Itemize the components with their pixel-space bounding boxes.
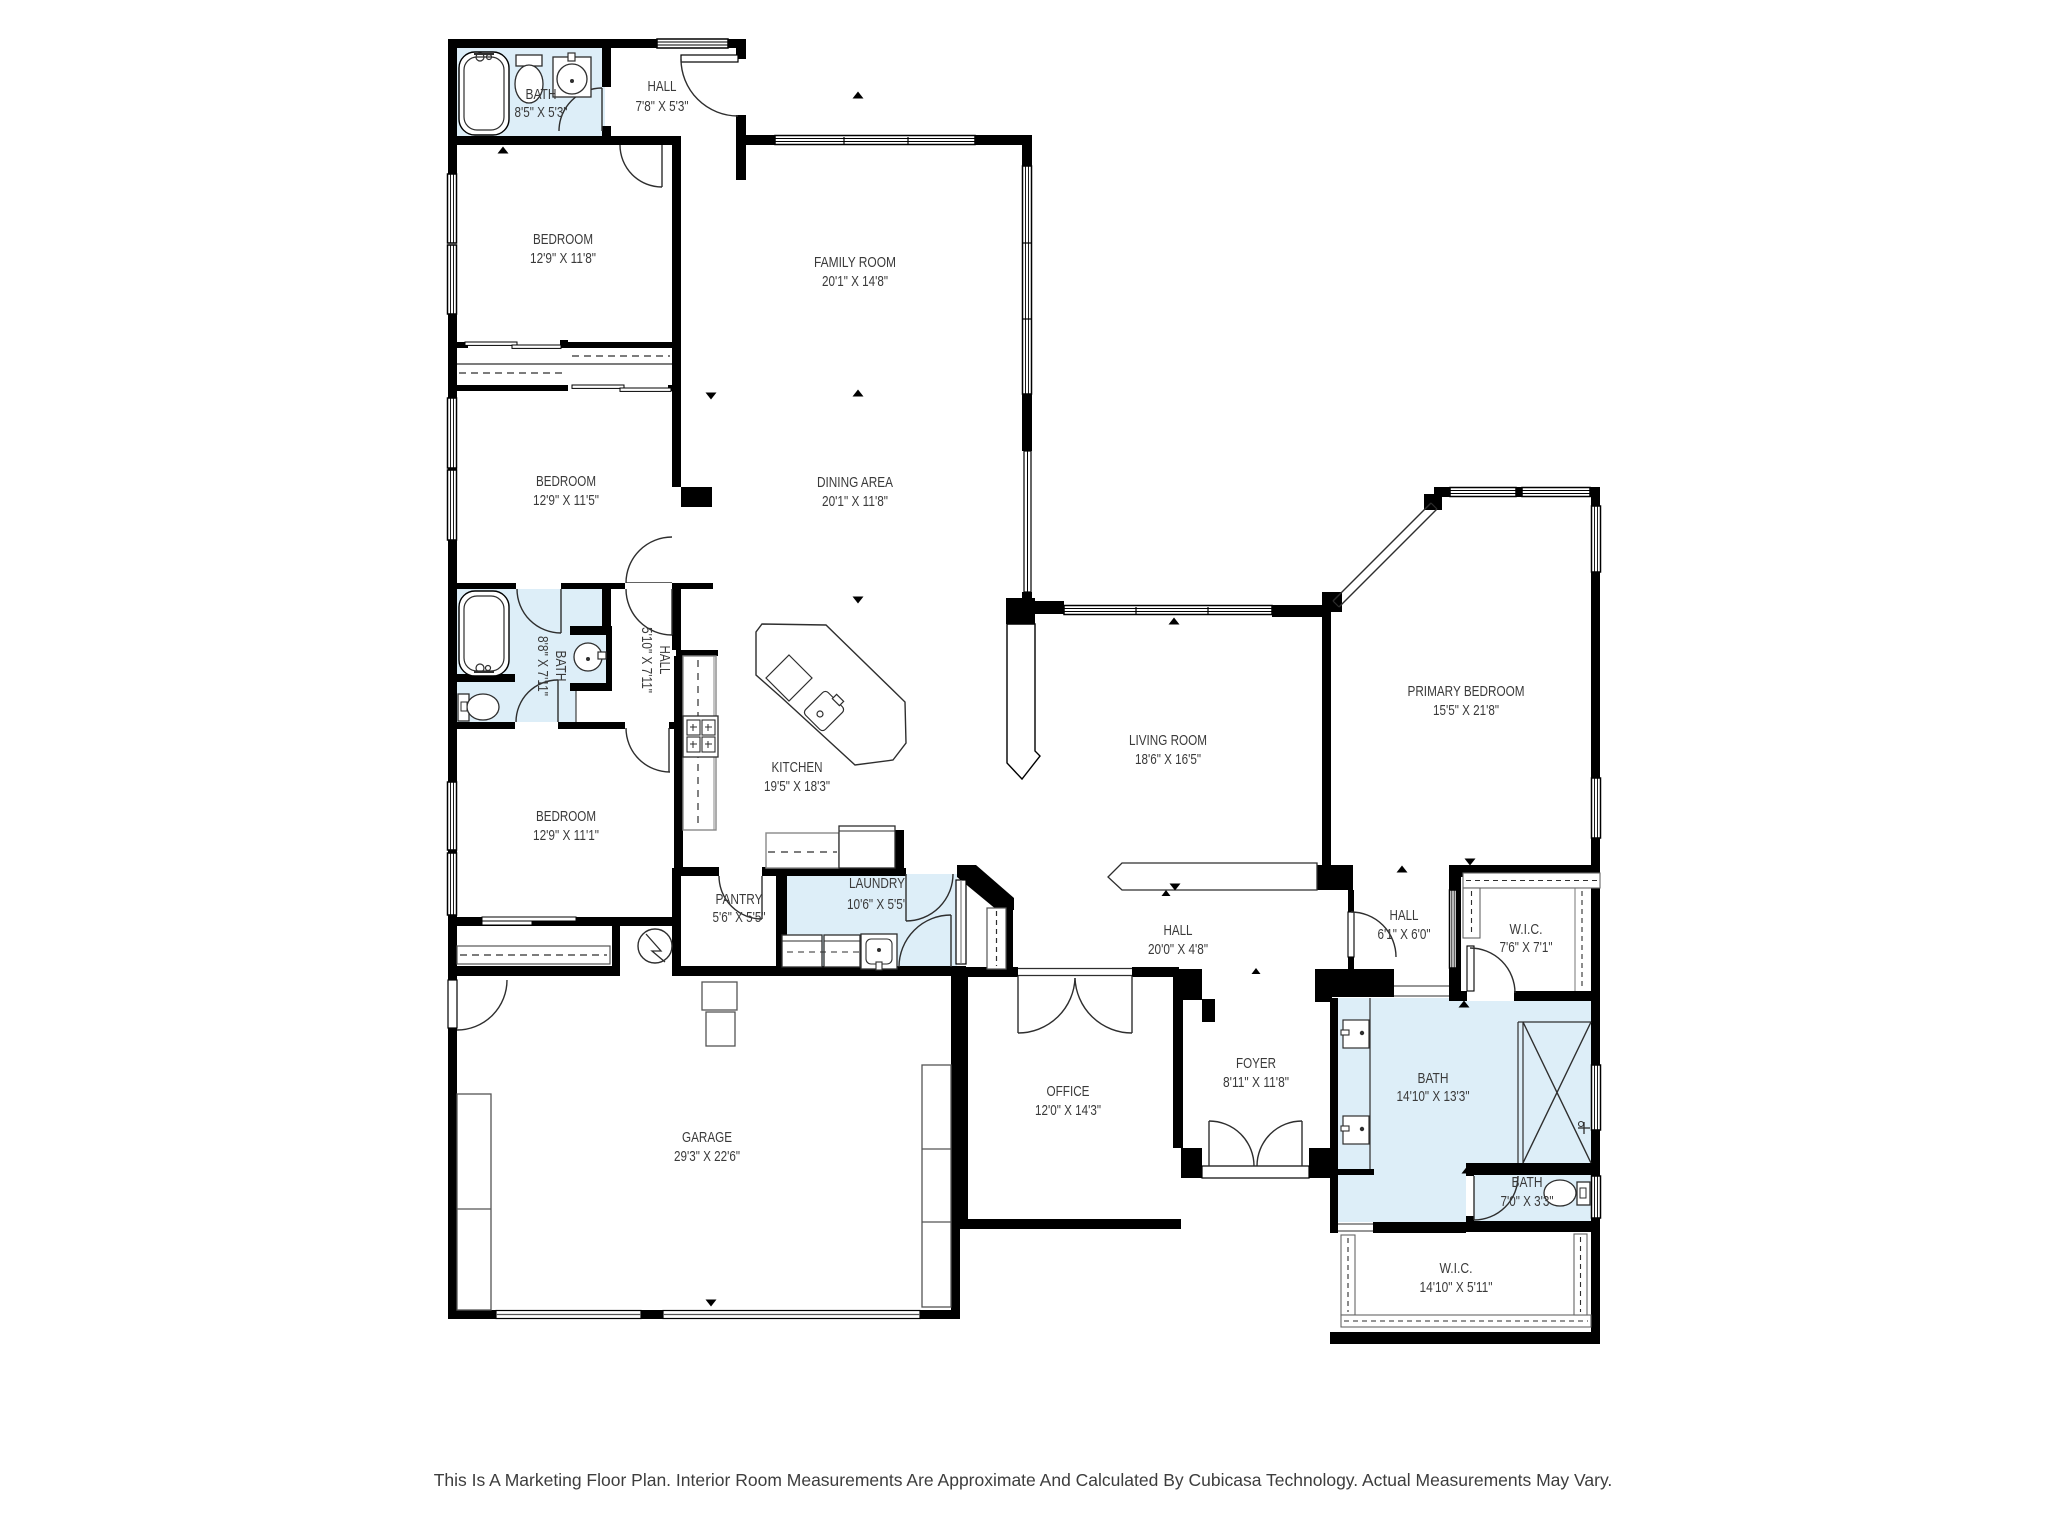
svg-text:19'5" X 18'3": 19'5" X 18'3" — [764, 778, 830, 795]
svg-text:7'8" X 5'3": 7'8" X 5'3" — [636, 98, 689, 115]
svg-text:BATH: BATH — [552, 651, 569, 682]
svg-text:20'1" X 14'8": 20'1" X 14'8" — [822, 273, 888, 290]
svg-text:DINING AREA: DINING AREA — [817, 474, 893, 491]
svg-text:GARAGE: GARAGE — [682, 1129, 732, 1146]
svg-text:18'6" X 16'5": 18'6" X 16'5" — [1135, 751, 1201, 768]
svg-text:14'10" X 5'11": 14'10" X 5'11" — [1420, 1279, 1493, 1296]
svg-text:FOYER: FOYER — [1236, 1055, 1276, 1072]
svg-text:W.I.C.: W.I.C. — [1510, 921, 1543, 938]
svg-text:7'6" X 7'1": 7'6" X 7'1" — [1500, 939, 1553, 956]
svg-text:BATH: BATH — [526, 86, 557, 103]
svg-text:8'8" X 7'11": 8'8" X 7'11" — [534, 636, 551, 696]
svg-text:LAUNDRY: LAUNDRY — [849, 875, 905, 892]
svg-text:HALL: HALL — [1390, 907, 1419, 924]
svg-text:12'9" X 11'8": 12'9" X 11'8" — [530, 250, 596, 267]
svg-text:BATH: BATH — [1418, 1070, 1449, 1087]
svg-text:12'9" X 11'1": 12'9" X 11'1" — [533, 827, 599, 844]
svg-text:BEDROOM: BEDROOM — [536, 808, 596, 825]
svg-text:LIVING ROOM: LIVING ROOM — [1129, 732, 1207, 749]
svg-text:12'0" X 14'3": 12'0" X 14'3" — [1035, 1102, 1101, 1119]
svg-text:FAMILY ROOM: FAMILY ROOM — [814, 254, 896, 271]
svg-text:12'9" X 11'5": 12'9" X 11'5" — [533, 492, 599, 509]
svg-text:14'10" X 13'3": 14'10" X 13'3" — [1397, 1088, 1470, 1105]
svg-text:8'11" X 11'8": 8'11" X 11'8" — [1223, 1074, 1289, 1091]
svg-text:10'6" X 5'5": 10'6" X 5'5" — [847, 896, 907, 913]
svg-text:HALL: HALL — [1164, 922, 1193, 939]
svg-text:20'1" X 11'8": 20'1" X 11'8" — [822, 493, 888, 510]
svg-text:29'3" X 22'6": 29'3" X 22'6" — [674, 1148, 740, 1165]
svg-text:15'5" X 21'8": 15'5" X 21'8" — [1433, 702, 1499, 719]
svg-text:PRIMARY BEDROOM: PRIMARY BEDROOM — [1408, 683, 1525, 700]
svg-text:W.I.C.: W.I.C. — [1440, 1260, 1473, 1277]
svg-text:20'0" X 4'8": 20'0" X 4'8" — [1148, 941, 1208, 958]
svg-text:OFFICE: OFFICE — [1047, 1083, 1090, 1100]
svg-text:PANTRY: PANTRY — [716, 891, 763, 908]
svg-text:HALL: HALL — [648, 78, 677, 95]
svg-text:BEDROOM: BEDROOM — [536, 473, 596, 490]
svg-text:KITCHEN: KITCHEN — [772, 759, 823, 776]
svg-text:BATH: BATH — [1512, 1174, 1543, 1191]
svg-text:This Is A Marketing Floor Plan: This Is A Marketing Floor Plan. Interior… — [434, 1470, 1613, 1490]
svg-text:7'0" X 3'3": 7'0" X 3'3" — [1501, 1193, 1554, 1210]
svg-text:HALL: HALL — [656, 646, 673, 675]
svg-text:5'6" X 5'5": 5'6" X 5'5" — [713, 909, 766, 926]
svg-text:6'1" X 6'0": 6'1" X 6'0" — [1378, 926, 1431, 943]
svg-text:BEDROOM: BEDROOM — [533, 231, 593, 248]
svg-text:5'10" X 7'11": 5'10" X 7'11" — [638, 627, 655, 693]
svg-text:8'5" X 5'3": 8'5" X 5'3" — [515, 104, 568, 121]
